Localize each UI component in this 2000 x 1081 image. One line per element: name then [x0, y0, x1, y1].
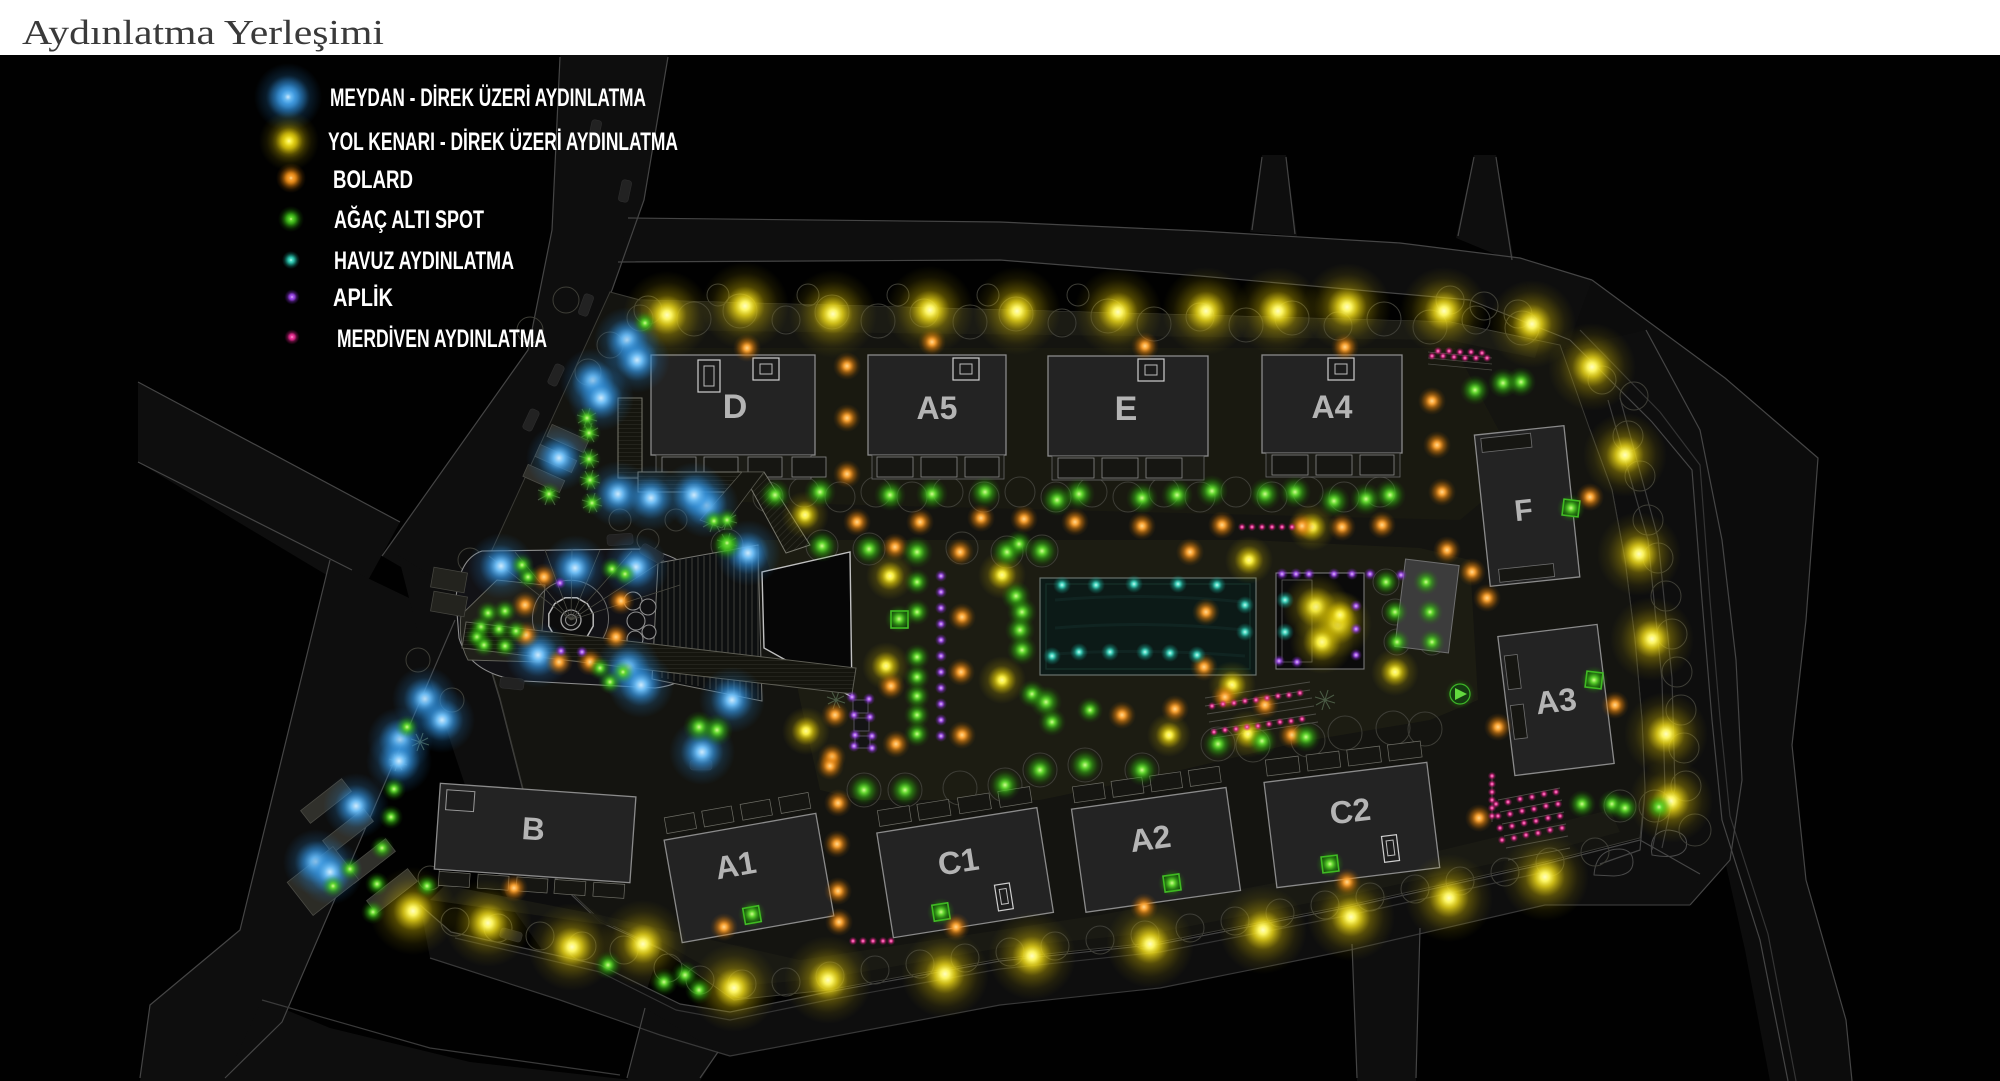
svg-text:HAVUZ AYDINLATMA: HAVUZ AYDINLATMA [334, 247, 514, 275]
svg-text:C1: C1 [935, 841, 981, 883]
svg-text:AĞAÇ ALTI SPOT: AĞAÇ ALTI SPOT [334, 205, 484, 234]
svg-text:BOLARD: BOLARD [333, 166, 413, 194]
svg-text:D: D [723, 388, 748, 426]
svg-text:A5: A5 [917, 390, 958, 426]
svg-text:APLİK: APLİK [333, 284, 393, 312]
svg-text:Aydınlatma Yerleşimi: Aydınlatma Yerleşimi [22, 13, 384, 52]
svg-text:A1: A1 [712, 844, 759, 887]
svg-text:A2: A2 [1128, 818, 1174, 859]
svg-text:F: F [1513, 494, 1535, 529]
svg-text:YOL KENARI - DİREK ÜZERİ AYDIN: YOL KENARI - DİREK ÜZERİ AYDINLATMA [328, 127, 678, 156]
svg-text:A3: A3 [1534, 681, 1579, 722]
svg-text:A4: A4 [1312, 389, 1353, 425]
svg-text:E: E [1115, 390, 1138, 428]
svg-text:MEYDAN - DİREK ÜZERİ AYDINLATM: MEYDAN - DİREK ÜZERİ AYDINLATMA [330, 83, 646, 112]
svg-text:C2: C2 [1328, 791, 1373, 832]
svg-text:MERDİVEN AYDINLATMA: MERDİVEN AYDINLATMA [337, 325, 547, 353]
svg-text:B: B [521, 810, 547, 848]
